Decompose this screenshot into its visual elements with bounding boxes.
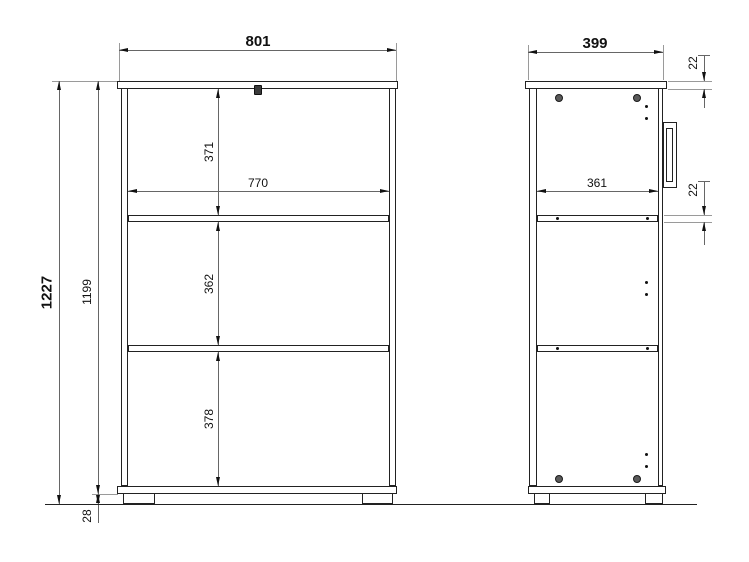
front-bottom-panel xyxy=(117,486,397,494)
hinge-hole-dot xyxy=(645,281,648,284)
front-foot-left xyxy=(123,493,155,504)
arrowhead xyxy=(537,189,546,193)
arrowhead xyxy=(649,189,658,193)
dimension-line xyxy=(119,50,396,51)
arrowhead xyxy=(119,48,128,52)
lock-icon xyxy=(254,85,262,95)
side-back-panel xyxy=(529,88,537,486)
dimension-line xyxy=(59,81,60,504)
shelf-pin-dot xyxy=(646,217,649,220)
arrowhead xyxy=(57,81,61,90)
screw-icon xyxy=(555,94,563,102)
side-top-panel xyxy=(525,81,667,89)
dimension-line xyxy=(98,81,99,494)
shelf-pin-dot xyxy=(646,347,649,350)
arrowhead xyxy=(528,50,537,54)
arrowhead xyxy=(96,485,100,494)
arrowhead xyxy=(216,206,220,215)
hinge-hole-dot xyxy=(645,453,648,456)
dimension-line xyxy=(537,191,658,192)
door-handle-slot xyxy=(666,128,673,182)
front-shelf-2 xyxy=(128,345,389,352)
arrowhead xyxy=(702,206,706,215)
front-foot-right xyxy=(362,493,393,504)
arrowhead xyxy=(702,72,706,81)
drawing-canvas: 801 770 1227 1199 28 371 xyxy=(0,0,749,562)
ground-line xyxy=(45,504,697,505)
screw-icon xyxy=(633,475,641,483)
front-shelf-1 xyxy=(128,215,389,222)
arrowhead xyxy=(702,222,706,231)
dimension-line xyxy=(128,191,389,192)
side-foot-front xyxy=(645,493,663,504)
dim-label-bottom-compartment: 378 xyxy=(202,402,216,436)
dim-label-total-height: 1227 xyxy=(40,271,55,315)
arrowhead xyxy=(216,222,220,231)
dimension-line xyxy=(528,52,663,53)
dim-label-shelf-thickness: 22 xyxy=(686,177,700,203)
hinge-hole-dot xyxy=(645,117,648,120)
dim-label-plinth-height: 28 xyxy=(80,501,94,531)
dimension-line xyxy=(218,352,219,486)
dim-label-middle-compartment: 362 xyxy=(202,267,216,301)
dim-label-depth: 399 xyxy=(575,36,615,51)
hinge-hole-dot xyxy=(645,105,648,108)
extension-line xyxy=(52,81,117,82)
dim-label-opening-depth: 361 xyxy=(577,176,617,190)
shelf-pin-dot xyxy=(556,217,559,220)
front-right-side-panel xyxy=(389,88,396,486)
arrowhead xyxy=(96,81,100,90)
arrowhead xyxy=(216,352,220,361)
hinge-hole-dot xyxy=(645,465,648,468)
dimension-line xyxy=(218,222,219,345)
arrowhead xyxy=(57,495,61,504)
dim-label-front-width: 801 xyxy=(238,34,278,49)
arrowhead xyxy=(380,189,389,193)
front-left-side-panel xyxy=(121,88,128,486)
extension-line xyxy=(668,81,712,82)
hinge-hole-dot xyxy=(645,293,648,296)
dim-label-top-compartment: 371 xyxy=(202,135,216,169)
screw-icon xyxy=(633,94,641,102)
arrowhead xyxy=(96,495,100,504)
arrowhead xyxy=(128,189,137,193)
arrowhead xyxy=(216,89,220,98)
arrowhead xyxy=(216,336,220,345)
arrowhead xyxy=(702,89,706,98)
dim-label-top-panel-thickness: 22 xyxy=(686,50,700,76)
arrowhead xyxy=(387,48,396,52)
dimension-line xyxy=(218,89,219,215)
side-foot-back xyxy=(534,493,550,504)
arrowhead xyxy=(216,477,220,486)
arrowhead xyxy=(654,50,663,54)
extension-line xyxy=(663,45,664,80)
screw-icon xyxy=(555,475,563,483)
shelf-pin-dot xyxy=(556,347,559,350)
extension-line xyxy=(396,43,397,81)
dim-label-opening-width: 770 xyxy=(238,176,278,190)
extension-line xyxy=(664,215,712,216)
dim-label-body-height: 1199 xyxy=(80,270,94,314)
